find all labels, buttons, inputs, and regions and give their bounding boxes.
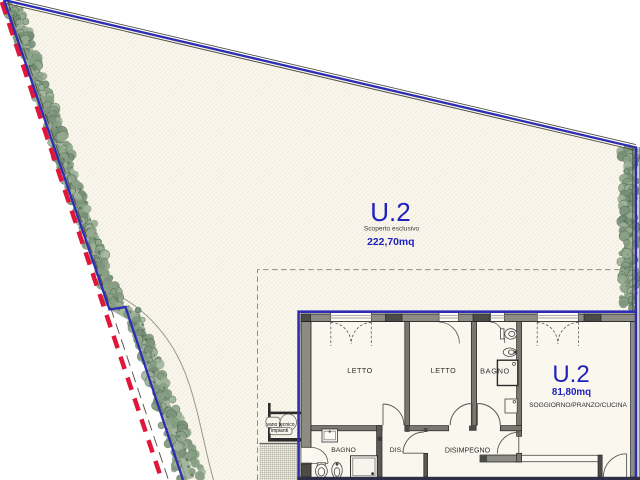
svg-text:81,80mq: 81,80mq xyxy=(552,387,591,398)
svg-text:DISIMPEGNO: DISIMPEGNO xyxy=(445,446,491,454)
svg-text:Scoperto esclusivo: Scoperto esclusivo xyxy=(364,226,420,233)
svg-text:LETTO: LETTO xyxy=(347,366,373,375)
svg-text:BAGNO: BAGNO xyxy=(331,447,356,454)
svg-text:SOGGIORNO/PRANZO/CUCINA: SOGGIORNO/PRANZO/CUCINA xyxy=(529,402,627,409)
svg-text:impianti: impianti xyxy=(271,428,288,434)
svg-text:222,70mq: 222,70mq xyxy=(367,237,414,248)
svg-text:LETTO: LETTO xyxy=(431,366,457,375)
svg-text:U.2: U.2 xyxy=(552,361,589,388)
svg-text:BAGNO: BAGNO xyxy=(480,366,510,375)
svg-text:DIS.: DIS. xyxy=(390,447,403,454)
svg-text:U.2: U.2 xyxy=(370,197,410,227)
